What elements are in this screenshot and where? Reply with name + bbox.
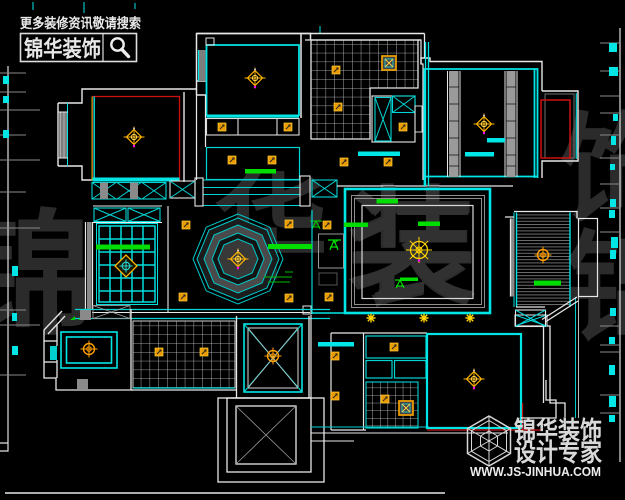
svg-text:更多装修资讯敬请搜索: 更多装修资讯敬请搜索	[20, 15, 141, 31]
svg-text:装: 装	[352, 181, 474, 317]
svg-text:锦华装饰: 锦华装饰	[24, 37, 101, 62]
svg-text:WWW.JS-JINHUA.COM: WWW.JS-JINHUA.COM	[470, 464, 601, 479]
svg-text:设计专家: 设计专家	[514, 438, 602, 467]
